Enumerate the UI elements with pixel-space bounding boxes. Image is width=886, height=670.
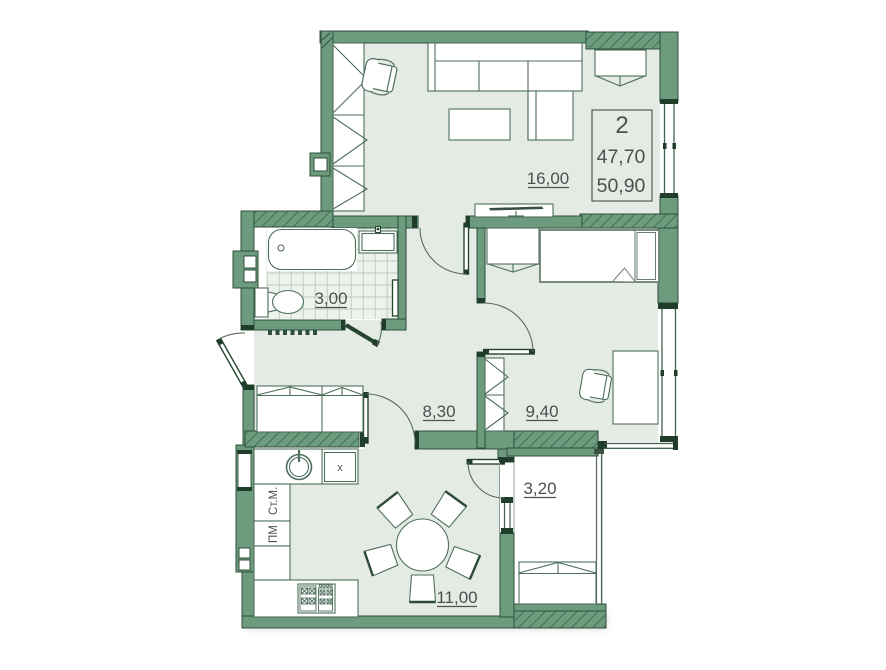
svg-text:16,00: 16,00 [527, 169, 570, 188]
svg-text:3,00: 3,00 [314, 289, 347, 308]
svg-text:50,90: 50,90 [597, 175, 646, 197]
svg-text:9,40: 9,40 [525, 402, 558, 421]
svg-text:8,30: 8,30 [422, 402, 455, 421]
svg-text:47,70: 47,70 [597, 146, 646, 168]
svg-text:ПМ: ПМ [268, 525, 280, 543]
svg-text:x: x [337, 462, 343, 474]
svg-text:Ст.М.: Ст.М. [268, 487, 280, 515]
svg-text:2: 2 [615, 112, 628, 139]
svg-text:11,00: 11,00 [436, 588, 477, 607]
svg-text:3,20: 3,20 [523, 479, 556, 498]
